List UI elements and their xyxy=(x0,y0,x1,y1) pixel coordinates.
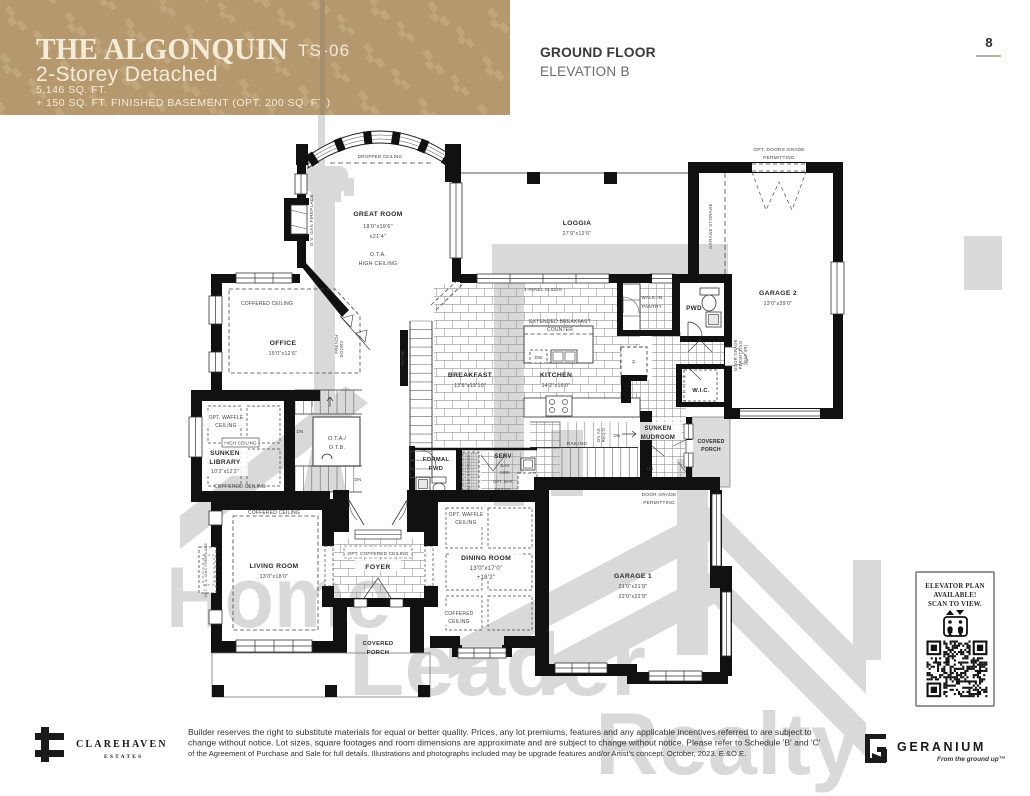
svg-text:DN: DN xyxy=(614,433,621,438)
svg-text:SINK: SINK xyxy=(500,470,510,475)
svg-text:Builder reserves the right to: Builder reserves the right to substitute… xyxy=(188,727,812,737)
svg-text:O.T.B.: O.T.B. xyxy=(329,445,346,451)
svg-text:O.T.A.: O.T.A. xyxy=(370,252,386,258)
svg-text:HIGH CEILING: HIGH CEILING xyxy=(224,441,257,446)
svg-text:COFFERED CEILING: COFFERED CEILING xyxy=(241,301,293,307)
svg-text:OPT. COFFERED CEILING: OPT. COFFERED CEILING xyxy=(347,551,408,557)
svg-text:KITCHEN: KITCHEN xyxy=(540,372,572,379)
svg-text:PORCH: PORCH xyxy=(367,650,389,656)
svg-text:OPT. WAFFLE: OPT. WAFFLE xyxy=(449,512,484,518)
svg-text:O.T.A./: O.T.A./ xyxy=(328,436,346,442)
svg-text:DN: DN xyxy=(297,429,304,434)
svg-text:PWD: PWD xyxy=(686,305,702,312)
svg-text:10'2″x12'2″: 10'2″x12'2″ xyxy=(211,469,239,475)
svg-text:BREAKFAST: BREAKFAST xyxy=(448,372,493,379)
svg-text:F: F xyxy=(632,360,635,366)
svg-text:13'0″x29'0″: 13'0″x29'0″ xyxy=(764,301,793,307)
svg-text:OFFICE: OFFICE xyxy=(270,340,297,347)
svg-text:W.I.C.: W.I.C. xyxy=(692,388,710,394)
svg-text:DOOR GRADE: DOOR GRADE xyxy=(642,492,677,498)
svg-text:DN: DN xyxy=(647,466,654,471)
svg-text:DN: DN xyxy=(355,477,362,482)
svg-text:SUNKEN: SUNKEN xyxy=(644,426,671,432)
svg-text:HIGH CEILING: HIGH CEILING xyxy=(359,261,398,267)
svg-text:PERMITTING: PERMITTING xyxy=(643,500,675,506)
svg-text:2-Storey Detached: 2-Storey Detached xyxy=(36,63,218,86)
svg-text:DW: DW xyxy=(535,355,543,360)
svg-text:OPT. BAR: OPT. BAR xyxy=(493,479,513,484)
svg-text:REQ'D: REQ'D xyxy=(601,428,606,442)
svg-text:SCAN TO VIEW.: SCAN TO VIEW. xyxy=(928,601,982,608)
svg-text:From the ground up™: From the ground up™ xyxy=(937,756,1005,763)
svg-text:LOGGIA: LOGGIA xyxy=(563,220,592,227)
svg-text:ELEVATOR PLAN: ELEVATOR PLAN xyxy=(925,583,984,590)
svg-text:COUNTER: COUNTER xyxy=(547,327,573,333)
svg-text:PORCH: PORCH xyxy=(701,447,721,453)
svg-text:LIBRARY: LIBRARY xyxy=(209,459,240,466)
svg-text:DINING ROOM: DINING ROOM xyxy=(461,555,511,562)
svg-text:MUDROOM: MUDROOM xyxy=(641,435,675,441)
svg-text:RAILING: RAILING xyxy=(567,441,588,447)
svg-text:DROPPED CEILING: DROPPED CEILING xyxy=(358,154,403,159)
svg-text:LIVING ROOM: LIVING ROOM xyxy=(250,563,299,570)
svg-text:FOYER: FOYER xyxy=(365,564,390,571)
svg-text:+18'2″: +18'2″ xyxy=(477,575,496,581)
svg-text:+ 150 SQ. FT. FINISHED BASEMEN: + 150 SQ. FT. FINISHED BASEMENT (OPT. 20… xyxy=(36,97,331,109)
svg-text:GARAGE STORAGE: GARAGE STORAGE xyxy=(708,203,713,249)
svg-text:SUNKEN: SUNKEN xyxy=(210,450,240,457)
svg-text:ESTATES: ESTATES xyxy=(104,754,143,760)
svg-text:13'0″x17'0″: 13'0″x17'0″ xyxy=(470,566,503,572)
svg-text:BAR: BAR xyxy=(501,463,510,468)
svg-text:x21'4″: x21'4″ xyxy=(370,234,386,240)
svg-text:COVERED: COVERED xyxy=(697,439,724,445)
svg-text:OPT. D.V. GAS FIREPLACE: OPT. D.V. GAS FIREPLACE xyxy=(204,543,208,598)
svg-text:8: 8 xyxy=(985,35,992,50)
svg-text:NICHE: NICHE xyxy=(400,350,405,365)
svg-text:WALK-IN: WALK-IN xyxy=(641,295,662,300)
svg-text:EXTENDED BREAKFAST: EXTENDED BREAKFAST xyxy=(529,319,591,325)
svg-text:AVAILABLE!: AVAILABLE! xyxy=(934,592,977,599)
svg-text:15'0″x12'6″: 15'0″x12'6″ xyxy=(269,351,298,357)
svg-text:22'0″x22'8″: 22'0″x22'8″ xyxy=(619,594,648,600)
svg-text:THE ALGONQUIN: THE ALGONQUIN xyxy=(36,31,288,66)
svg-text:OPT. WAFFLE: OPT. WAFFLE xyxy=(209,415,244,421)
svg-text:GARAGE 1: GARAGE 1 xyxy=(614,573,652,580)
svg-text:SERV: SERV xyxy=(494,454,511,460)
svg-text:13'6″x19'10″: 13'6″x19'10″ xyxy=(454,383,486,389)
svg-text:14'2″x16'0″: 14'2″x16'0″ xyxy=(542,383,571,389)
svg-text:OPT. DOORS GRADE: OPT. DOORS GRADE xyxy=(753,147,804,153)
svg-text:GROUND FLOOR: GROUND FLOOR xyxy=(540,45,656,60)
svg-text:27'9″x12'6″: 27'9″x12'6″ xyxy=(563,231,592,237)
svg-text:D.V. GAS FIREPLACE: D.V. GAS FIREPLACE xyxy=(309,194,314,246)
svg-text:GERANIUM: GERANIUM xyxy=(897,740,986,754)
svg-text:PANTRY: PANTRY xyxy=(642,304,662,309)
svg-text:PERMITTING: PERMITTING xyxy=(763,155,795,161)
svg-text:18'0″x19'6″: 18'0″x19'6″ xyxy=(363,224,393,230)
svg-text:WINE STORAGE: WINE STORAGE xyxy=(466,454,471,490)
svg-text:ELEVATION B: ELEVATION B xyxy=(540,64,630,79)
svg-text:GARAGE 2: GARAGE 2 xyxy=(759,290,797,297)
svg-text:(MAX 3R): (MAX 3R) xyxy=(743,344,748,365)
svg-text:CLAREHAVEN: CLAREHAVEN xyxy=(76,739,168,750)
svg-text:CEILING: CEILING xyxy=(215,423,236,429)
svg-text:13'0″x18'0″: 13'0″x18'0″ xyxy=(260,574,289,580)
svg-text:CEILING: CEILING xyxy=(448,619,469,625)
svg-text:COFFERED: COFFERED xyxy=(444,611,473,617)
svg-text:5,146 SQ. FT.: 5,146 SQ. FT. xyxy=(36,84,107,96)
svg-text:COVERED: COVERED xyxy=(363,641,394,647)
svg-text:CEILING: CEILING xyxy=(455,520,476,526)
svg-text:4-PANEL SLIDER: 4-PANEL SLIDER xyxy=(524,287,562,292)
svg-text:of the Agreement of Purchase a: of the Agreement of Purchase and Sale fo… xyxy=(188,749,746,758)
svg-text:DOORS: DOORS xyxy=(339,341,344,358)
svg-text:21'0″x21'8″: 21'0″x21'8″ xyxy=(619,584,648,590)
svg-text:COFFERED CEILING: COFFERED CEILING xyxy=(248,510,300,516)
svg-text:change without notice. Lot siz: change without notice. Lot sizes, square… xyxy=(188,738,821,748)
svg-text:GREAT ROOM: GREAT ROOM xyxy=(353,211,402,218)
svg-text:COFFERED CEILING: COFFERED CEILING xyxy=(214,484,266,490)
